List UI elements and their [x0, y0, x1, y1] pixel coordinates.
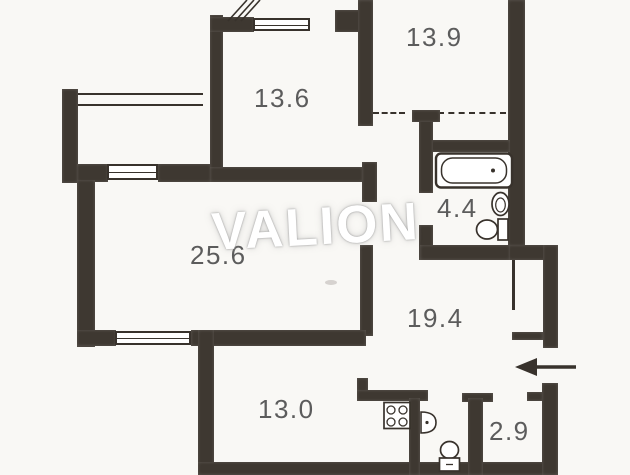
bathtub-icon: [436, 154, 512, 188]
wall: [198, 462, 558, 475]
window: [115, 331, 191, 345]
wall: [198, 330, 214, 475]
wall: [77, 330, 116, 346]
window: [253, 18, 310, 31]
wall: [412, 110, 440, 122]
room-area-label: 2.9: [489, 416, 530, 447]
room-area-label: 13.6: [254, 83, 311, 114]
wall: [360, 245, 373, 336]
balcony-railing: [63, 93, 203, 106]
washbasin-icon: [421, 412, 436, 433]
entrance-arrow-icon: [515, 358, 576, 376]
wall: [508, 0, 525, 246]
scan-artifact: [325, 280, 337, 285]
wall: [158, 164, 211, 182]
wall: [543, 245, 558, 348]
wall: [542, 383, 558, 475]
wall: [420, 245, 510, 260]
room-area-label: 25.6: [190, 240, 247, 271]
wall: [191, 330, 366, 346]
wall: [362, 162, 377, 202]
wall: [62, 89, 78, 183]
room-area-label: 4.4: [437, 193, 478, 224]
wall: [468, 398, 483, 475]
wall: [512, 332, 543, 340]
wall: [419, 113, 433, 193]
wall: [210, 15, 223, 182]
floor-plan: 13.9 13.6 25.6 4.4 19.4 13.0 2.9 VALION: [0, 0, 630, 475]
pedestal-sink-icon: [492, 193, 509, 216]
room-area-label: 19.4: [407, 303, 464, 334]
wall: [358, 0, 373, 126]
wall: [430, 140, 510, 152]
wall: [77, 180, 95, 347]
room-area-label: 13.0: [258, 394, 315, 425]
stove-icon: [384, 403, 410, 429]
toilet-icon: [477, 219, 509, 240]
wall: [210, 167, 363, 182]
opening-dashed-line: [373, 112, 405, 114]
window: [107, 164, 158, 180]
room-area-label: 13.9: [406, 22, 463, 53]
wall: [409, 398, 420, 475]
wall: [527, 392, 543, 401]
opening-dashed-line: [438, 112, 506, 114]
wall: [210, 17, 254, 32]
door-leaf: [512, 260, 515, 310]
